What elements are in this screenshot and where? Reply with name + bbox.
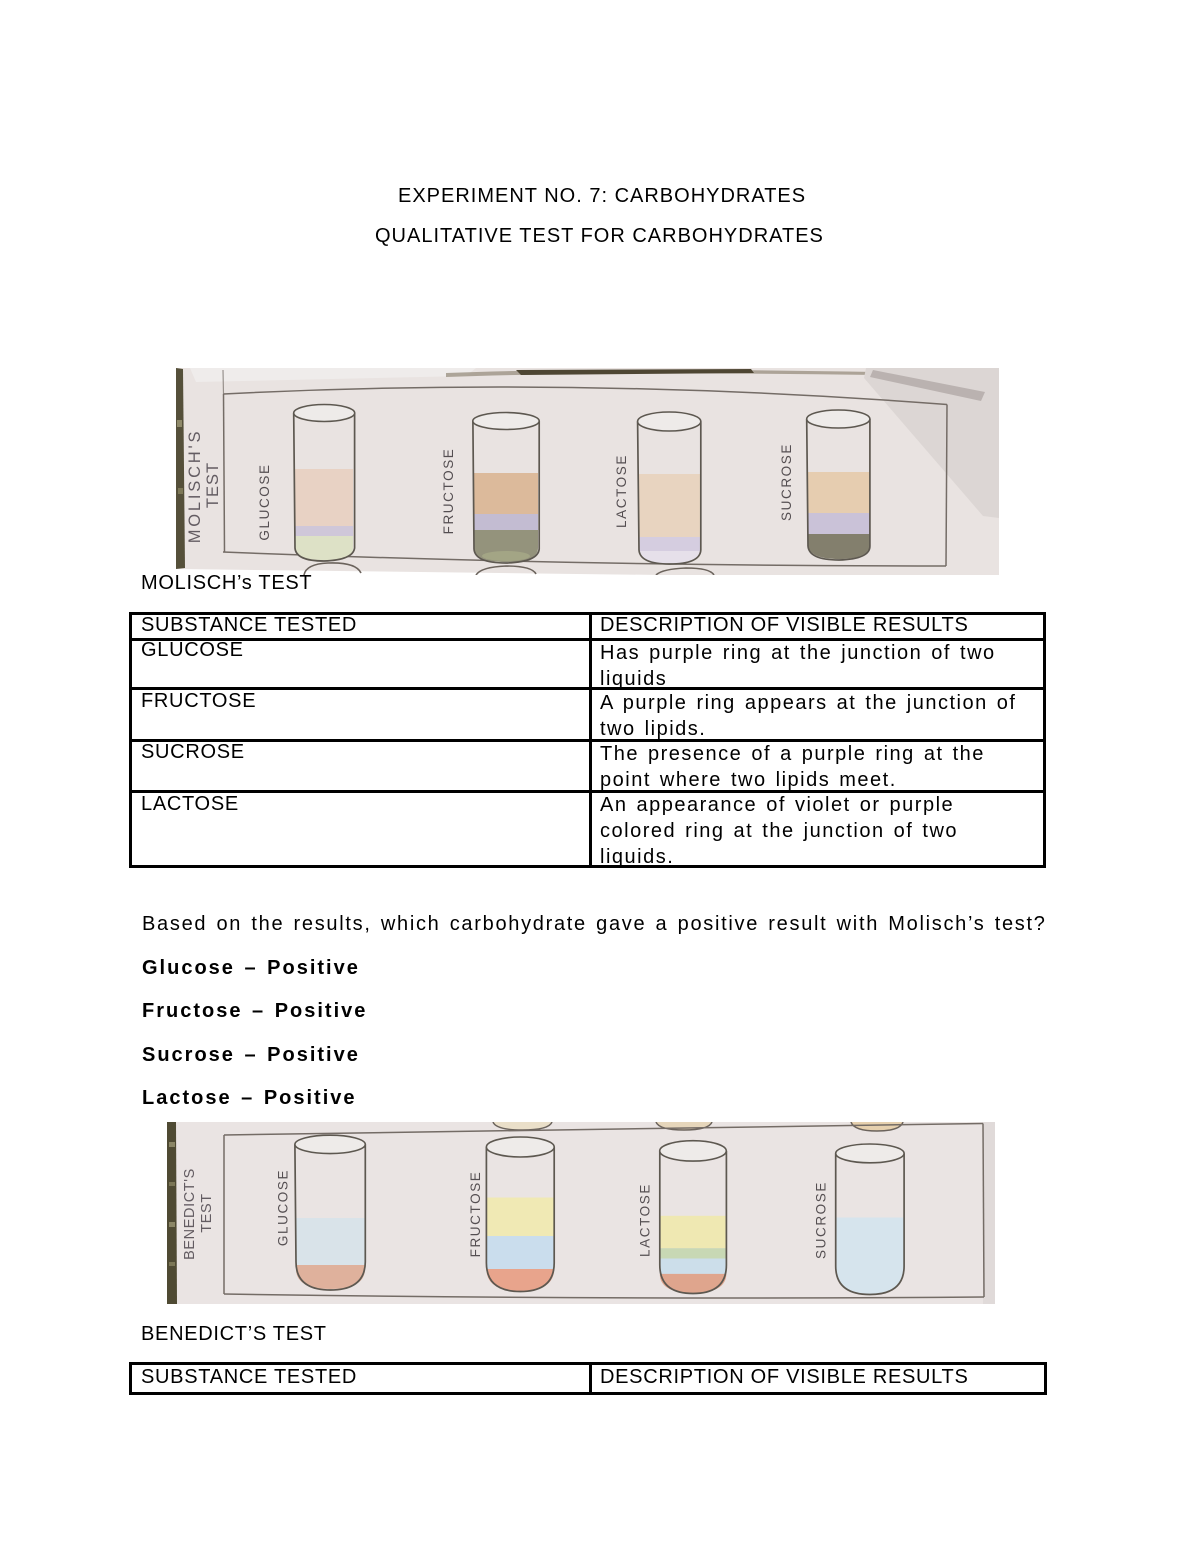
svg-text:SUCROSE: SUCROSE: [779, 443, 794, 521]
svg-text:GLUCOSE: GLUCOSE: [257, 463, 272, 540]
svg-text:FRUCTOSE: FRUCTOSE: [468, 1171, 483, 1258]
svg-text:BENEDICT'S: BENEDICT'S: [182, 1168, 198, 1260]
svg-text:GLUCOSE: GLUCOSE: [276, 1169, 291, 1246]
svg-text:FRUCTOSE: FRUCTOSE: [441, 448, 456, 535]
svg-text:LACTOSE: LACTOSE: [638, 1183, 653, 1257]
svg-text:LACTOSE: LACTOSE: [614, 454, 629, 528]
svg-text:TEST: TEST: [199, 1193, 215, 1232]
svg-text:SUCROSE: SUCROSE: [814, 1181, 829, 1259]
svg-text:TEST: TEST: [204, 462, 222, 508]
svg-text:MOLISCH'S: MOLISCH'S: [186, 429, 204, 544]
